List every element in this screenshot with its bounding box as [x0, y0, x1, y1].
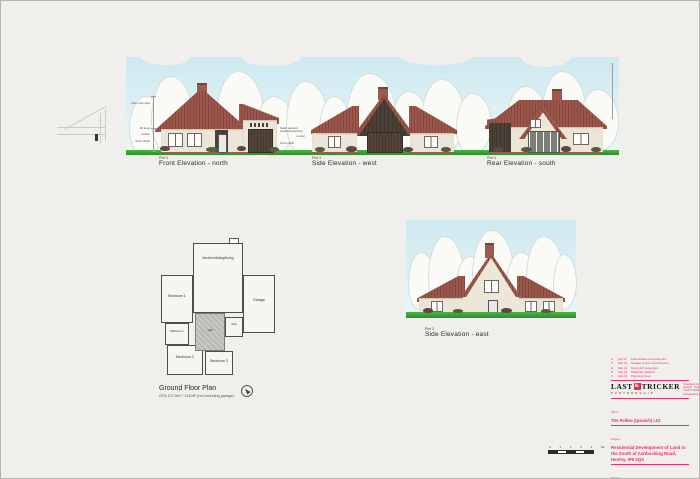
elevation-label-west: Side Elevation - west [312, 160, 377, 167]
material-note: plain clay tiles [127, 102, 150, 105]
drawing-sheet: Plot 3 Front Elevation - north plain cla… [0, 0, 700, 479]
sketch-line [100, 113, 101, 143]
window [424, 136, 438, 148]
elevation-label-rear: Rear Elevation - south [487, 160, 556, 167]
room-label: kitchen/dining/living [201, 257, 235, 261]
room-utility [225, 317, 243, 337]
shrub [493, 147, 503, 152]
ground-floor-plan: kitchen/dining/living Garage Bedroom 1 B… [159, 237, 277, 379]
room-label: hall [197, 329, 223, 332]
shrub [403, 147, 413, 152]
room-kitchen [193, 243, 243, 313]
cloud-shape [401, 50, 471, 65]
cloud-shape [141, 49, 191, 65]
gable-window [530, 119, 541, 128]
shrub [315, 147, 325, 152]
drawing-row: Drawing Plot 3 [611, 466, 689, 479]
firm-logo: LAST&TRICKER PARTNERSHIP Chartered Archi… [611, 383, 689, 397]
scale-tick-label: 4 [591, 445, 593, 449]
material-note: black painted weatherboarding [280, 127, 304, 134]
shrub [237, 146, 246, 151]
revision-desc: Planning issue [631, 374, 689, 378]
shrub [441, 147, 451, 152]
tree-silhouette [456, 93, 492, 155]
north-arrow-pointer [244, 387, 251, 394]
project-label: Project [611, 437, 620, 441]
material-note: render [291, 135, 305, 138]
scale-tick-label: 0 [549, 445, 551, 449]
shrub [423, 308, 433, 313]
plan-gfa-note: GFA 107.8m² / 1160ft² (not including gar… [159, 394, 234, 398]
client-label: Client [611, 410, 618, 414]
vent-detail [250, 123, 268, 127]
revision-row: C Feb 21 Planning issue [611, 374, 689, 378]
window [168, 133, 183, 147]
scale-tick-label: 5m [601, 445, 605, 449]
logo-ampersand-icon: & [634, 383, 641, 390]
cloud-shape [521, 47, 571, 67]
plan-title: Ground Floor Plan [159, 385, 216, 392]
room-garage [243, 275, 275, 333]
title-block: G Apr 21 Fenestration amendments F Mar 2… [611, 357, 689, 479]
revision-date: Feb 21 [618, 374, 631, 378]
firm-address: Chartered Architects Ipswich · Suffolk t… [683, 383, 700, 397]
dimension-tick [151, 151, 156, 152]
address-line: www.lasttricker.co.uk [683, 393, 700, 396]
north-arrow-icon [241, 385, 253, 397]
pole-silhouette [612, 63, 613, 119]
divider [611, 425, 689, 426]
french-doors [528, 131, 560, 153]
material-note: cill level [127, 127, 150, 130]
scale-tick-label: 2 [570, 445, 572, 449]
revision-table: G Apr 21 Fenestration amendments F Mar 2… [611, 357, 689, 379]
elevation-label-front: Front Elevation - north [159, 160, 228, 167]
material-note: brick plinth [127, 140, 150, 143]
dimension-tick [151, 96, 156, 97]
client-row: Client The Follies (Ipswich) Ltd. [611, 400, 689, 423]
scale-bar-labels: 0 1 2 3 4 5m [549, 445, 605, 449]
dimension-line [153, 96, 154, 152]
sketch-line [105, 109, 106, 141]
scale-tick-label: 1 [559, 445, 561, 449]
logo-wordmark: LAST&TRICKER [611, 383, 680, 391]
shrub [160, 146, 170, 151]
divider [611, 398, 689, 399]
cloud-shape [241, 48, 301, 66]
logo-word1: LAST [611, 382, 633, 391]
dimension-tick [151, 128, 156, 129]
room-bathroom [165, 323, 189, 345]
logo-word2: TRICKER [642, 382, 681, 391]
shrub [453, 309, 463, 313]
room-bedroom1 [161, 275, 193, 323]
scale-bar: 0 1 2 3 4 5m [549, 445, 605, 454]
shrub [561, 146, 571, 152]
ground-line-east [406, 312, 576, 318]
material-note: render [127, 133, 150, 136]
room-label: utility [225, 324, 243, 327]
project-row: Project Residential Development of Land … [611, 427, 689, 462]
logo-subtitle: PARTNERSHIP [611, 391, 680, 395]
room-label: Bathroom [165, 330, 189, 333]
room-label: Bedroom 3 [205, 360, 233, 364]
gable-window [484, 280, 499, 293]
revision-letter: C [611, 374, 618, 378]
project-name: Residential Development of Land to the S… [611, 445, 689, 462]
room-label: Bedroom 1 [163, 295, 191, 299]
shrub [269, 147, 279, 152]
front-door [218, 134, 227, 153]
window [328, 136, 341, 148]
shrub [521, 147, 532, 152]
material-note: brick plinth [280, 142, 304, 145]
shrub [206, 147, 218, 152]
shrub [591, 147, 601, 152]
shrub [541, 309, 551, 313]
window [573, 133, 589, 145]
window [525, 301, 537, 312]
client-name: The Follies (Ipswich) Ltd. [611, 418, 689, 423]
shrub [501, 308, 512, 313]
scale-bar-segments [549, 450, 605, 454]
window [187, 133, 202, 147]
room-label: Bedroom 2 [169, 356, 201, 360]
garage-door-west [367, 132, 403, 153]
room-label: Garage [245, 299, 273, 303]
elevation-label-east: Side Elevation - east [425, 331, 489, 338]
scale-tick-label: 3 [580, 445, 582, 449]
sketch-dim-tick [95, 134, 98, 141]
scale-segment [584, 450, 594, 454]
divider [611, 464, 689, 465]
shrub [346, 146, 357, 152]
